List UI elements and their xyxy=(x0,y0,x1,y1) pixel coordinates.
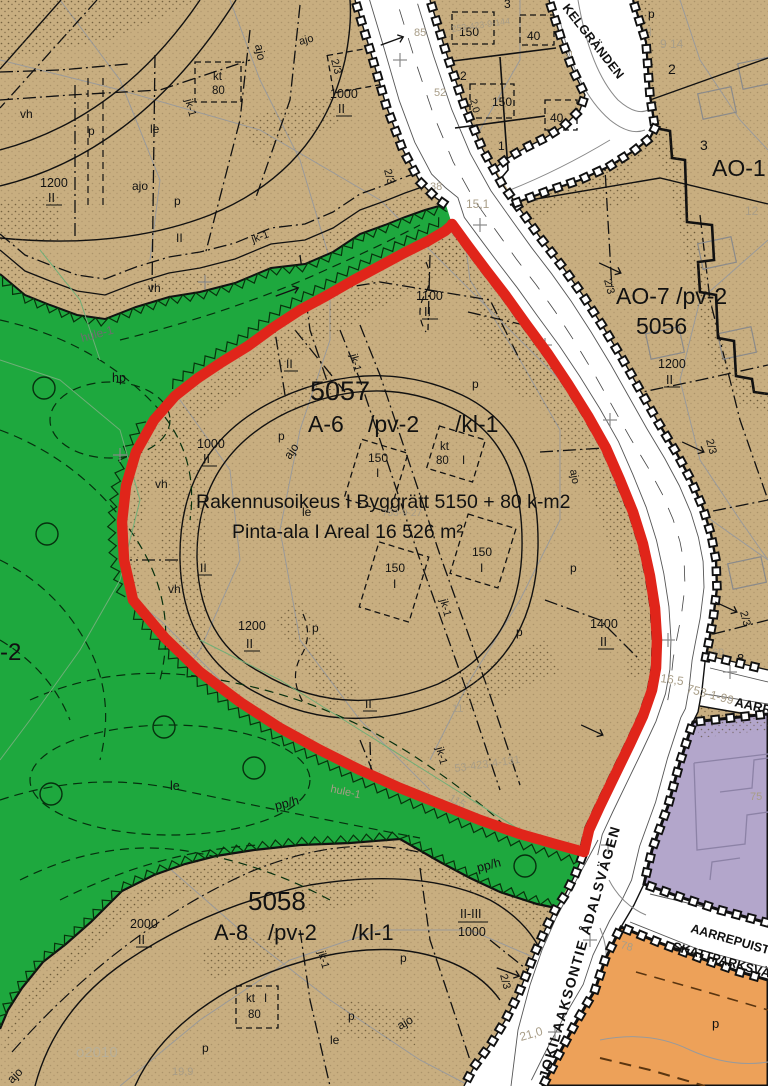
svg-text:o2010: o2010 xyxy=(76,1044,118,1061)
svg-text:le: le xyxy=(170,779,180,793)
svg-text:1: 1 xyxy=(498,139,505,153)
svg-text:1000: 1000 xyxy=(330,87,358,101)
svg-text:p: p xyxy=(516,625,523,639)
svg-text:150: 150 xyxy=(385,561,405,575)
svg-text:1400: 1400 xyxy=(590,617,618,631)
svg-text:AO-1: AO-1 xyxy=(712,155,766,181)
svg-text:85: 85 xyxy=(414,27,426,39)
svg-text:150: 150 xyxy=(492,95,512,109)
svg-text:80: 80 xyxy=(212,85,225,97)
svg-text:p: p xyxy=(472,377,479,391)
svg-text:5056: 5056 xyxy=(636,313,687,339)
svg-text:2: 2 xyxy=(668,61,676,77)
svg-text:p: p xyxy=(400,951,407,965)
svg-text:15,1: 15,1 xyxy=(466,197,490,211)
svg-text:2: 2 xyxy=(460,69,467,83)
svg-text:II: II xyxy=(666,373,673,387)
svg-text:1100: 1100 xyxy=(416,289,443,303)
svg-text:3: 3 xyxy=(504,0,511,11)
svg-text:kt: kt xyxy=(213,71,223,83)
svg-text:p: p xyxy=(712,1016,719,1031)
svg-text:I: I xyxy=(393,577,396,591)
svg-text:p: p xyxy=(570,561,577,575)
svg-text:vh: vh xyxy=(20,107,33,121)
svg-text:ajo: ajo xyxy=(567,468,581,485)
svg-text:/pv-2: /pv-2 xyxy=(0,639,21,666)
svg-text:80: 80 xyxy=(436,455,449,467)
svg-text:1200: 1200 xyxy=(238,619,266,633)
svg-text:11: 11 xyxy=(452,703,463,715)
svg-text:75: 75 xyxy=(750,791,762,803)
svg-text:12: 12 xyxy=(745,204,759,218)
svg-text:hp: hp xyxy=(112,371,126,385)
svg-text:A-6: A-6 xyxy=(308,411,344,437)
svg-text:II: II xyxy=(600,635,607,649)
svg-text:19,9: 19,9 xyxy=(172,1066,193,1078)
svg-text:753-9-27: 753-9-27 xyxy=(382,508,422,519)
svg-text:40: 40 xyxy=(527,29,541,43)
svg-text:II: II xyxy=(424,305,431,319)
svg-text:II: II xyxy=(365,697,372,711)
svg-text:kt: kt xyxy=(246,993,256,1005)
svg-text:p: p xyxy=(202,1041,209,1055)
svg-text:80: 80 xyxy=(248,1009,261,1021)
svg-text:kt: kt xyxy=(440,441,450,453)
svg-text:ajo: ajo xyxy=(252,43,269,62)
svg-text:II-III: II-III xyxy=(460,907,482,921)
svg-text:2000: 2000 xyxy=(130,917,158,931)
svg-text:II: II xyxy=(246,637,253,651)
svg-text:150: 150 xyxy=(368,451,388,465)
svg-text:I: I xyxy=(462,455,465,467)
svg-text:I: I xyxy=(376,466,379,480)
svg-text:p: p xyxy=(88,124,95,138)
svg-text:1200: 1200 xyxy=(40,176,68,190)
svg-text:p: p xyxy=(174,194,181,208)
svg-text:le: le xyxy=(302,505,312,519)
svg-text:le: le xyxy=(150,122,160,136)
svg-text:Pinta-ala I Areal 16 526 m²: Pinta-ala I Areal 16 526 m² xyxy=(232,521,463,543)
svg-text:1000: 1000 xyxy=(458,925,486,939)
svg-text:/pv-2: /pv-2 xyxy=(368,411,419,437)
svg-text:9 14: 9 14 xyxy=(660,37,684,51)
svg-text:1200: 1200 xyxy=(658,357,686,371)
svg-text:ajo: ajo xyxy=(132,179,148,193)
svg-text:p: p xyxy=(278,429,285,443)
svg-text:I: I xyxy=(264,993,267,1005)
svg-text:/kl-1: /kl-1 xyxy=(455,411,498,437)
svg-text:3: 3 xyxy=(700,137,708,153)
svg-text:/kl-1: /kl-1 xyxy=(352,920,394,945)
svg-text:150: 150 xyxy=(472,545,492,559)
svg-text:II: II xyxy=(138,933,145,947)
svg-text:vh: vh xyxy=(148,281,161,295)
svg-text:52: 52 xyxy=(434,87,446,99)
svg-text:II: II xyxy=(338,102,345,116)
svg-text:I: I xyxy=(480,561,483,575)
svg-text:II: II xyxy=(176,231,183,245)
